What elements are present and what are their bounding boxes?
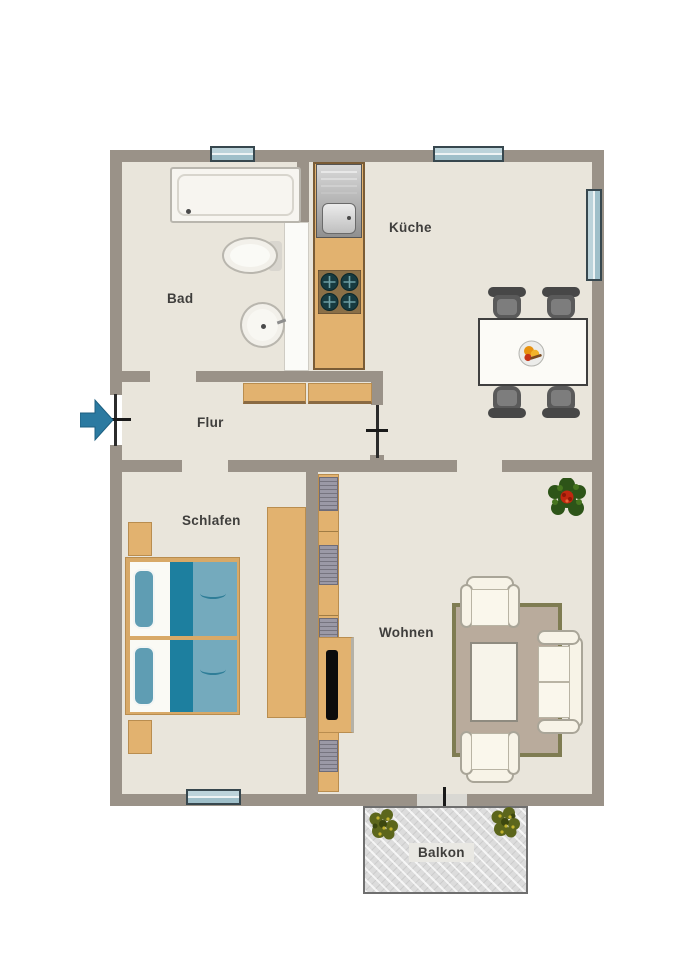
window-kueche-right [586,189,602,281]
armchair-top-seat [471,589,509,626]
wall-flur-south-b [228,460,457,472]
fruit-bowl-icon [518,340,545,367]
wall-bad-south-a [122,371,150,382]
flur-door-tick [366,429,388,432]
window-bad [210,146,255,162]
room-label-schlafen: Schlafen [182,513,241,528]
balcony-door-threshold [417,794,467,806]
room-label-balkon: Balkon [409,843,474,862]
wall-top [110,150,604,162]
coffee-table [470,642,518,722]
sofa-arm-bottom [537,719,580,734]
nightstand-top [128,522,152,556]
sink-drain [347,216,351,220]
sofa-cushion-1 [538,646,570,682]
plant-icon [546,478,588,520]
room-label-flur: Flur [197,415,224,430]
bed-1 [130,562,237,636]
room-label-kueche: Küche [389,220,432,235]
chair-2-seat [547,295,575,319]
balcony-plant-right-icon [489,807,521,839]
sideboard-left [243,383,306,404]
floor-plan: Bad Küche Flur Schlafen Wohnen Balkon [0,0,679,960]
bed-1-pillow [133,569,155,629]
bathtub-inner [177,174,294,216]
toilet [222,237,278,274]
bed-1-crease [200,588,226,599]
wall-bottom-left [110,794,417,806]
wall-flur-south-c [502,460,592,472]
sofa-back [568,636,583,728]
bathtub-drain [186,209,191,214]
bathtub [170,167,301,223]
window-schlafen [186,789,241,805]
bath-partition [284,222,309,371]
washbasin-drain [261,324,266,329]
wardrobe [267,507,306,718]
kitchen-sink-unit [316,164,362,238]
armchair-bottom-seat [471,733,509,770]
bed-2 [130,640,237,712]
sofa-arm-top [537,630,580,645]
room-label-bad: Bad [167,291,193,306]
tv [326,650,338,720]
chair-1-seat [493,295,521,319]
bed-2-pillow [133,646,155,706]
sideboard-right [308,383,372,404]
wall-bottom-right [467,794,604,806]
room-label-wohnen: Wohnen [379,625,434,640]
books-1 [319,477,338,511]
washbasin [240,302,285,348]
chair-4-seat [547,386,575,410]
balcony-plant-left-icon [367,809,399,841]
chair-3-back [488,408,526,418]
bed-2-crease [200,664,226,675]
chair-4-back [542,408,580,418]
wall-stub-door [371,371,383,405]
books-2 [319,545,338,585]
wall-schlafen-wohnen [306,460,318,794]
wall-left-lower [110,445,122,806]
sink-basin [322,203,356,234]
stove-icon [318,270,361,314]
wall-flur-south-a [122,460,182,472]
window-kueche-top [433,146,504,162]
sofa-cushion-2 [538,682,570,718]
books-4 [319,740,338,772]
wall-left-upper [110,150,122,395]
wall-bad-south-b [196,371,383,382]
chair-3-seat [493,386,521,410]
nightstand-bottom [128,720,152,754]
double-bed [125,557,240,715]
entrance-arrow-icon [80,396,114,444]
